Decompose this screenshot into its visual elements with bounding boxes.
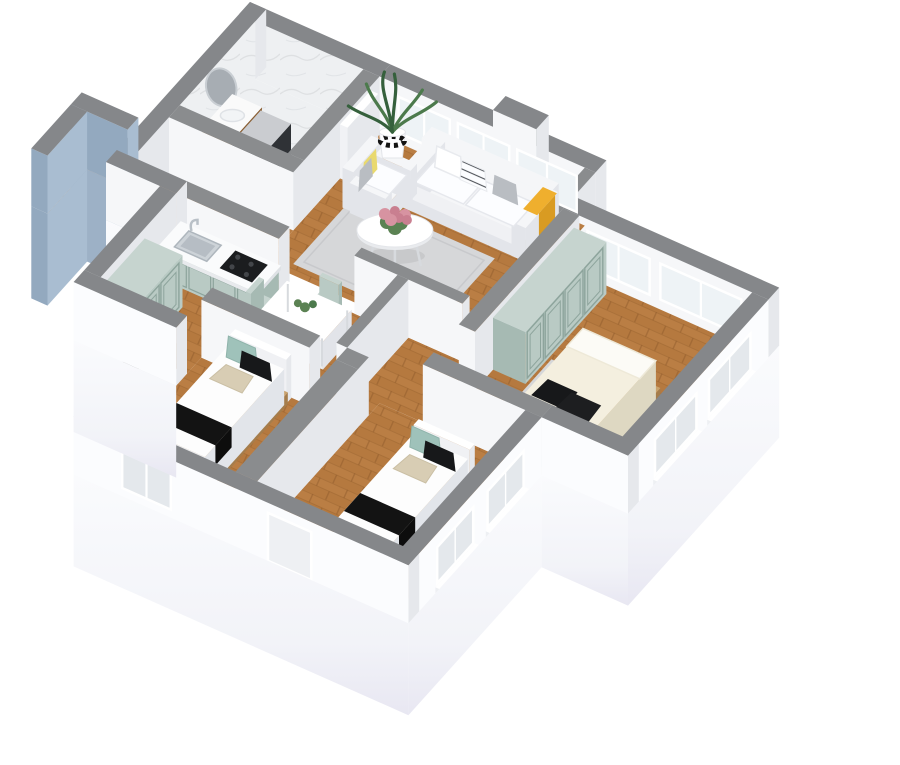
dining-centerpiece xyxy=(309,300,317,308)
vanity-sink-basin xyxy=(220,110,244,122)
dining-centerpiece xyxy=(294,299,302,307)
coffee-table-flowers xyxy=(402,215,412,225)
cooktop-burner xyxy=(229,264,234,269)
floor-plan-canvas: 3D isometric dollhouse render of an apar… xyxy=(0,0,900,765)
entry-niche-west-panel-side-s xyxy=(31,148,47,213)
master-window-1-mullion xyxy=(618,245,620,282)
coffee-table-flowers xyxy=(385,214,397,226)
master-east-window-1-mullion xyxy=(729,356,730,394)
south-window-mullion xyxy=(145,462,147,499)
south-wall-side-e xyxy=(408,553,419,623)
cooktop-burner xyxy=(244,272,249,277)
bedroom3-east-window-1-mullion xyxy=(505,470,506,508)
bedroom3-east-window-2-mullion xyxy=(455,526,456,564)
master-north-wall-side-e xyxy=(768,288,779,358)
southwest-wall-side-e xyxy=(176,316,187,386)
cooktop-burner xyxy=(235,255,240,260)
partition-junction-side-e xyxy=(358,357,369,427)
master-south-ext-wall-side-e xyxy=(628,444,639,514)
cooktop-burner xyxy=(248,262,253,267)
master-east-window-2-mullion xyxy=(675,416,676,454)
entry-niche-end-skirt xyxy=(31,206,47,305)
floor-plan-3d xyxy=(0,0,900,765)
master-window-2-mullion xyxy=(700,281,702,318)
bathroom-south-wall-side-e xyxy=(293,160,304,230)
